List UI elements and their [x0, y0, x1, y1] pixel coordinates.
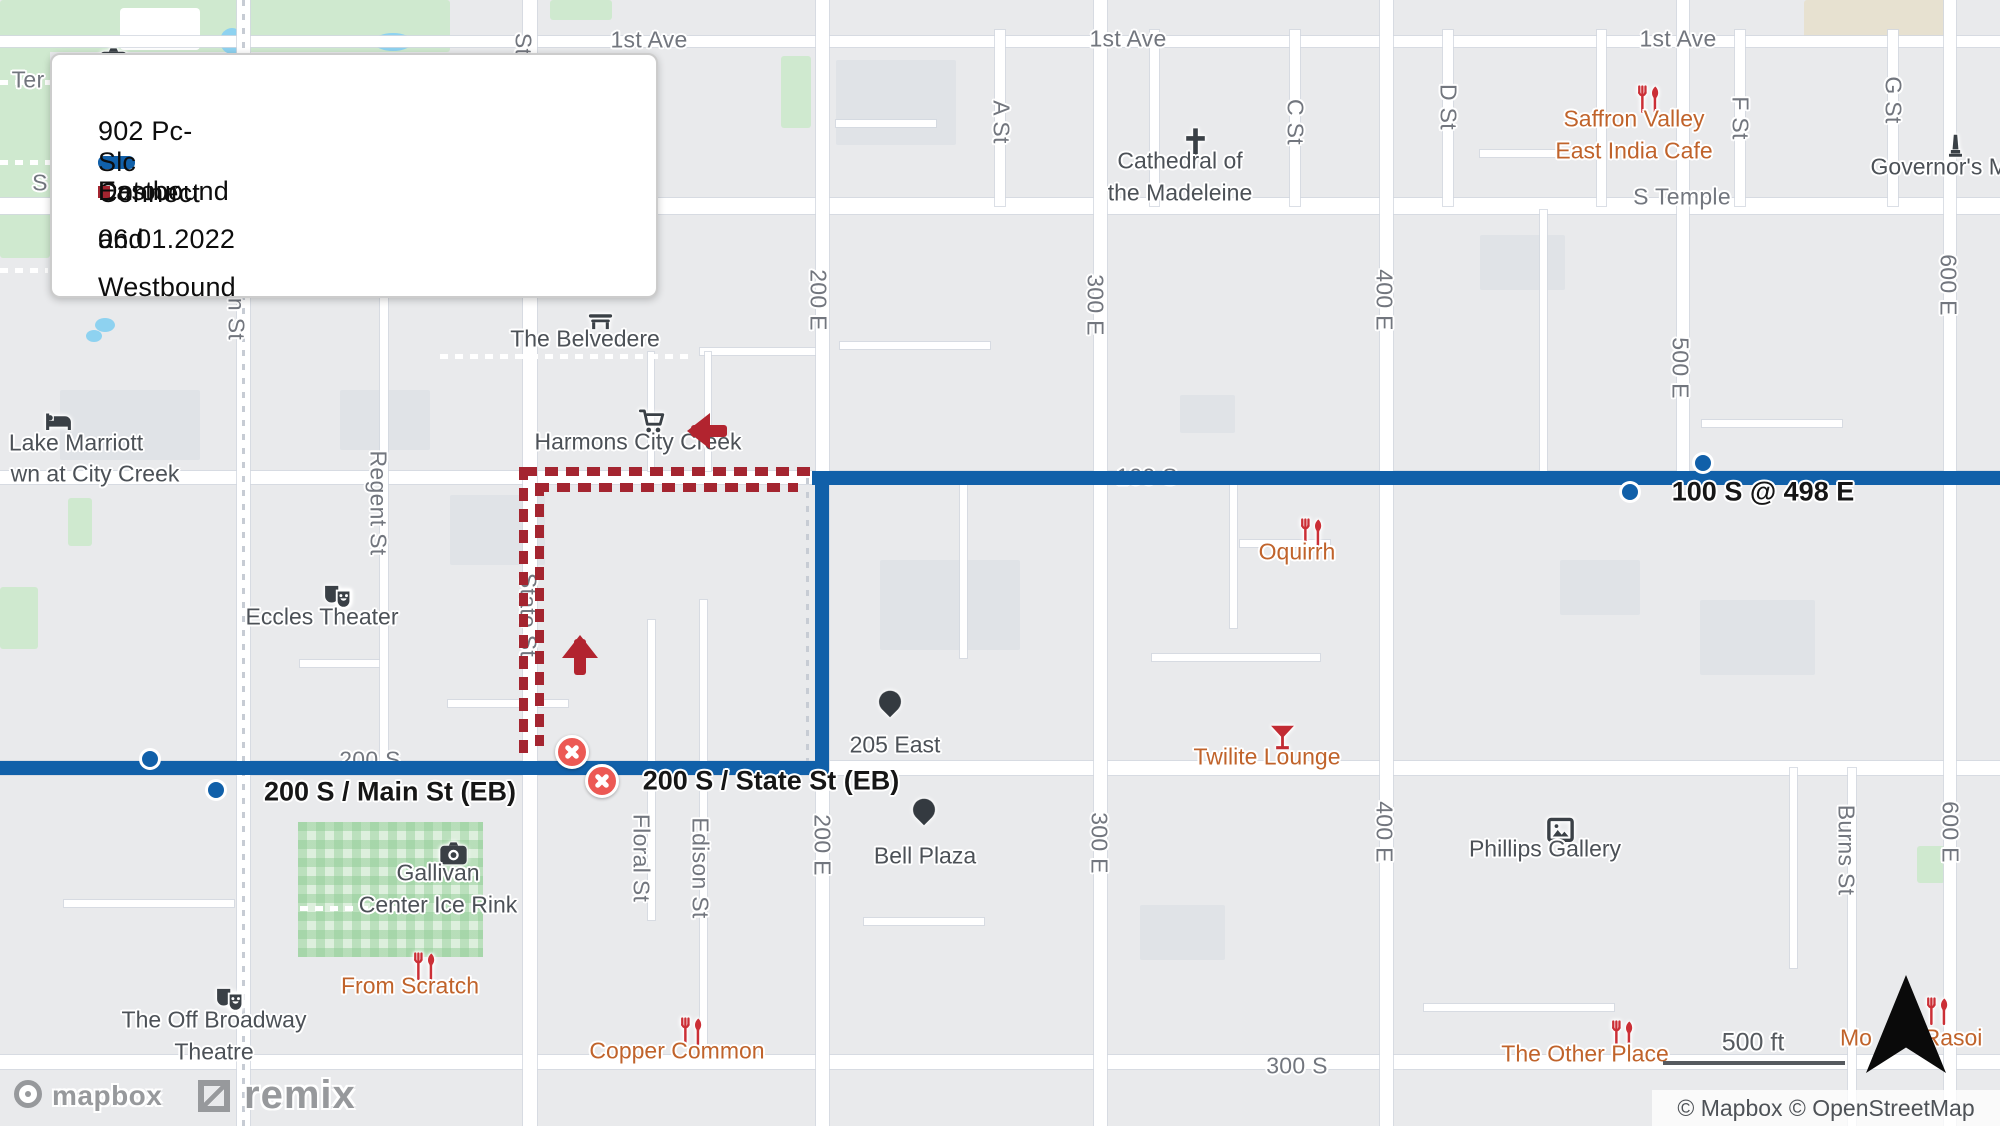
- stop-label: 200 S / State St (EB): [643, 766, 900, 797]
- road: [960, 478, 967, 658]
- scale-label: 500 ft: [1722, 1029, 1785, 1058]
- poi-label: Lake Marriott: [9, 430, 143, 457]
- route-stop-marker: [142, 751, 158, 767]
- street-label: S: [32, 170, 48, 197]
- street-label: Ter: [12, 67, 45, 94]
- street-label: F St: [1727, 96, 1754, 139]
- road: [300, 660, 380, 667]
- mapbox-logo-icon[interactable]: [14, 1080, 42, 1108]
- road: [448, 700, 568, 707]
- poi-label: From Scratch: [341, 973, 479, 1000]
- route-stop-marker: [1622, 484, 1638, 500]
- poi-label: Phillips Gallery: [1469, 836, 1621, 863]
- poi-label: wn at City Creek: [11, 461, 180, 488]
- road: [1677, 0, 1689, 478]
- remix-logo-icon: [198, 1080, 230, 1112]
- poi-label: The Belvedere: [510, 326, 660, 353]
- rail-line: [806, 478, 809, 761]
- street-label: 1st Ave: [1089, 26, 1166, 53]
- park: [68, 498, 92, 546]
- building: [880, 560, 1020, 650]
- path: [440, 354, 690, 359]
- street-label: 1st Ave: [1639, 26, 1716, 53]
- poi-label: The Other Place: [1501, 1041, 1668, 1068]
- poi-label: Cathedral of: [1117, 148, 1242, 175]
- road: [836, 120, 936, 127]
- poi-label: Center Ice Rink: [359, 892, 518, 919]
- road: [1094, 0, 1107, 1126]
- mapbox-logo-text[interactable]: mapbox: [52, 1080, 162, 1112]
- street-label: 300 E: [1082, 274, 1109, 336]
- stop-label: 100 S @ 498 E: [1672, 477, 1854, 508]
- map-canvas[interactable]: 902 Pc-Slc Connect Eastbound and Westbou…: [0, 0, 2000, 1126]
- route-902-line-200e: [815, 471, 829, 775]
- path: [0, 268, 48, 273]
- detour-arrow-up-icon: [562, 617, 598, 675]
- park: [550, 0, 612, 20]
- street-label: 400 E: [1371, 801, 1398, 863]
- path: [0, 160, 52, 165]
- street-label: 400 E: [1371, 269, 1398, 331]
- closure-x-icon: [585, 764, 619, 798]
- road: [1424, 1004, 1614, 1011]
- street-label: 300 E: [1086, 812, 1113, 874]
- scale-bar: [1663, 1061, 1845, 1065]
- poi-label: the Madeleine: [1108, 180, 1253, 207]
- road: [1230, 478, 1237, 628]
- street-label: G St: [1880, 76, 1907, 123]
- road: [1152, 654, 1320, 661]
- street-label: 600 E: [1937, 801, 1964, 863]
- building: [1700, 600, 1815, 675]
- road: [1380, 0, 1393, 1126]
- poi-label: Oquirrh: [1259, 539, 1336, 566]
- detour-line-100s-a: [524, 467, 816, 476]
- stop-label: 200 S / Main St (EB): [264, 777, 516, 808]
- route-stop-marker: [208, 782, 224, 798]
- poi-label: Twilite Lounge: [1193, 744, 1340, 771]
- poi-label: Gallivan: [396, 860, 479, 887]
- building: [1560, 560, 1640, 615]
- poi-label: East India Cafe: [1555, 138, 1712, 165]
- street-label: Regent St: [365, 451, 392, 556]
- road: [864, 918, 984, 925]
- street-label: Edison St: [687, 817, 714, 918]
- street-label: 300 S: [1266, 1053, 1328, 1080]
- detour-line-state-b: [535, 483, 544, 746]
- street-label: 1st Ave: [610, 27, 687, 54]
- detour-line-state-a: [519, 467, 528, 757]
- poi-label: 205 East: [850, 732, 941, 759]
- detour-line-100s-b: [536, 483, 798, 492]
- legend-card: 902 Pc-Slc Connect Eastbound and Westbou…: [50, 53, 658, 298]
- poi-label: Governor's Man: [1871, 154, 2000, 181]
- detour-arrow-left-icon: [669, 413, 727, 449]
- building: [1140, 905, 1225, 960]
- route-stop-marker: [1695, 455, 1711, 471]
- map-pin-icon: [874, 686, 905, 717]
- poi-label: Eccles Theater: [246, 604, 399, 631]
- closure-x-icon: [555, 735, 589, 769]
- map-pin-icon: [908, 794, 939, 825]
- road: [1790, 768, 1797, 968]
- street-label: Floral St: [628, 814, 655, 902]
- poi-label: Copper Common: [589, 1038, 764, 1065]
- street-label: S Temple: [1633, 184, 1731, 211]
- pond: [86, 330, 102, 342]
- road: [840, 342, 990, 349]
- street-label: D St: [1435, 84, 1462, 130]
- street-label: A St: [988, 100, 1015, 143]
- park: [781, 56, 811, 128]
- park: [1804, 0, 1954, 38]
- poi-label: Bell Plaza: [874, 843, 976, 870]
- remix-logo-text: remix: [244, 1073, 356, 1118]
- street-label: Burns St: [1833, 805, 1860, 896]
- road: [1702, 420, 1842, 427]
- park: [0, 587, 38, 649]
- poi-label: The Off Broadway: [122, 1007, 307, 1034]
- street-label: 200 E: [805, 269, 832, 331]
- road: [700, 348, 816, 355]
- road: [1480, 150, 1560, 157]
- street-label: 200 E: [809, 814, 836, 876]
- road: [1540, 210, 1547, 478]
- poi-label: Mo: [1840, 1025, 1872, 1052]
- road: [64, 900, 234, 907]
- map-attribution[interactable]: © Mapbox © OpenStreetMap: [1652, 1090, 2000, 1126]
- poi-label: Theatre: [174, 1039, 253, 1066]
- poi-label: Saffron Valley: [1563, 106, 1704, 133]
- building: [1480, 235, 1565, 290]
- street-label: C St: [1282, 99, 1309, 145]
- building: [1180, 395, 1235, 433]
- street-label: 600 E: [1935, 254, 1962, 316]
- street-label: 500 E: [1667, 337, 1694, 399]
- building: [836, 60, 956, 145]
